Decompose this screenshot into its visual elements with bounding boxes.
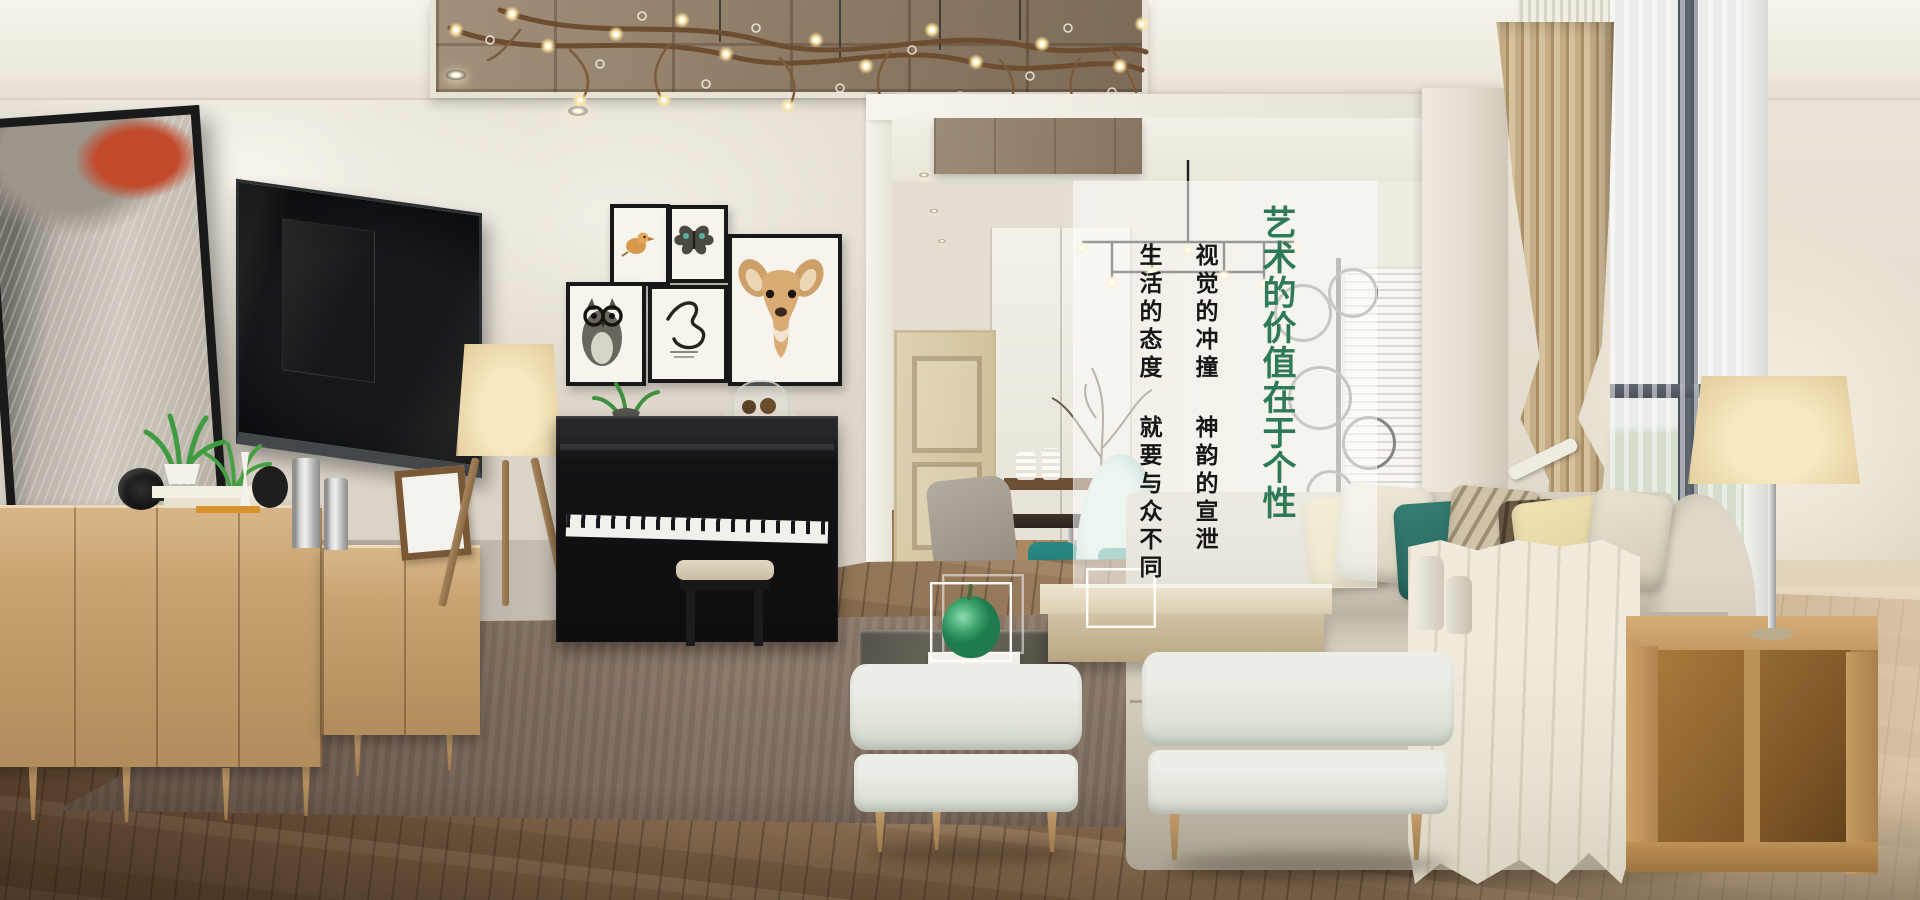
silver-cylinder [292,458,320,548]
cube-table-bottom [1626,842,1878,872]
stacked-jars [1042,448,1060,480]
window-reveal [1744,0,1768,640]
black-disc-decor [252,466,288,508]
lamp-leg [502,460,509,606]
tv-reflection [282,218,375,383]
slogan-title: 艺术的价值在于个性 [1259,205,1293,535]
piano-lid-edge [560,444,834,450]
slogan-line-1: 视觉的冲撞 神韵的宣泄 [1193,243,1216,553]
silver-cylinder [324,478,348,550]
doorway-casing-top [866,94,1430,120]
piano-bench-leg [754,590,763,646]
pinecone [760,398,776,414]
frame-butterfly [668,205,728,283]
ottoman-1-cushion [850,664,1082,750]
piano-bench-frame [680,580,770,590]
sideboard-left [0,505,322,767]
script-art [652,289,716,371]
butterfly-art [672,209,716,271]
door-panel [912,356,982,453]
ottoman-1-base [854,754,1078,812]
sideboard-right [322,545,480,735]
bird-art [614,208,658,274]
table-lamp-base [1750,628,1794,640]
dining-spotlight [919,173,929,178]
slogan-panel: 艺术的价值在于个性 视觉的冲撞 神韵的宣泄 生活的态度 就要与众不同 [1073,181,1377,588]
pinecone [742,400,756,414]
dining-chair-gray [925,474,1019,562]
owl-art [570,286,634,374]
ottoman-2-cushion [1142,652,1454,746]
cube-table-rightpanel [1846,652,1878,874]
table-vase-small [1446,576,1472,634]
book-orange [196,506,260,513]
coffee-table-top [1040,584,1332,614]
table-lamp-stem [1768,482,1776,632]
ottoman-shadow [870,842,1080,864]
ottoman-shadow [1170,852,1450,876]
ottoman-2-base [1148,750,1448,814]
dining-spotlight [930,209,939,214]
dining-spotlight [938,239,946,243]
piano-bench-cushion [676,560,774,580]
table-lamp-shade [1688,376,1860,484]
frame-script [648,285,728,383]
piano-bench-leg [686,590,695,646]
stacked-jars [1016,452,1036,480]
slogan-line-2: 生活的态度 就要与众不同 [1137,243,1160,583]
hero-banner: 艺术的价值在于个性 视觉的冲撞 神韵的宣泄 生活的态度 就要与众不同 [0,0,1920,900]
frame-bird [610,204,670,286]
deer-art [732,238,830,374]
table-vase [1414,556,1444,630]
frame-owl [566,282,646,386]
cube-table-divider [1744,650,1760,842]
green-apple-sculpture [942,596,1000,658]
cube-table-leftpanel [1626,646,1658,868]
doorway-casing-left [866,94,894,562]
frame-deer [728,234,842,386]
tripod-lamp-shade [456,344,562,456]
